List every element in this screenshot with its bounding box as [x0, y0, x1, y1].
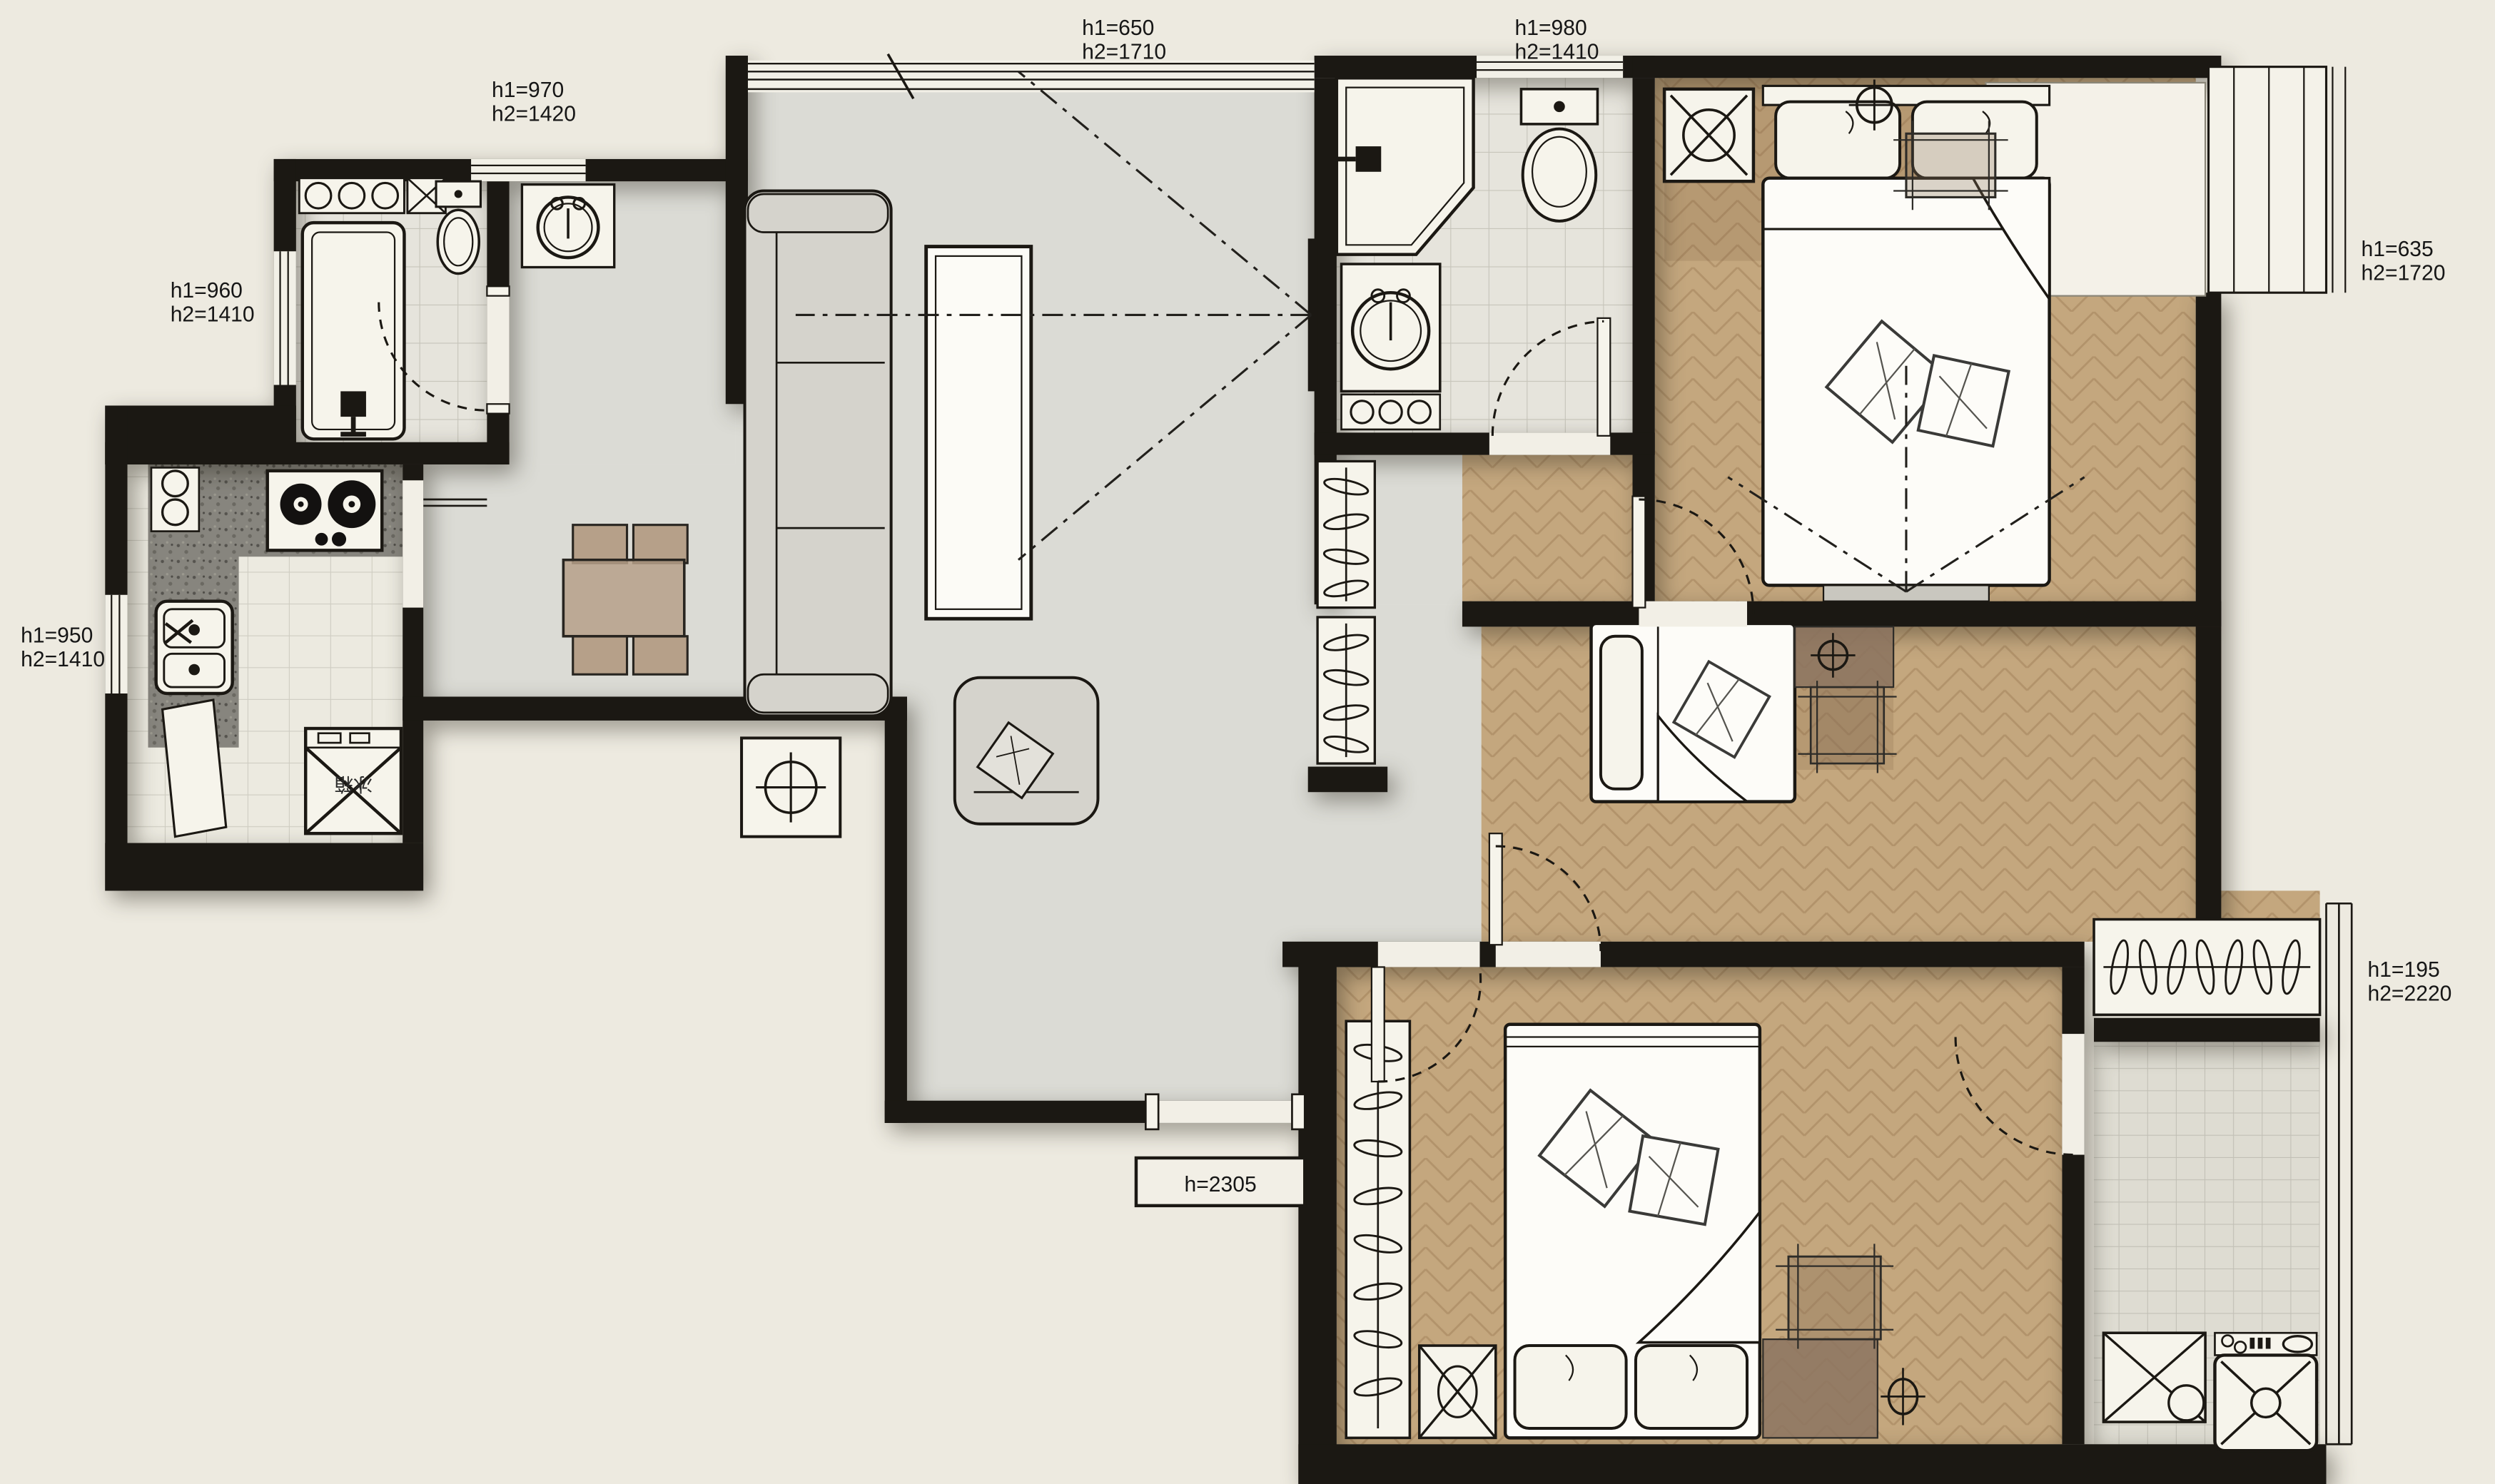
bath1-door-opening[interactable] [487, 293, 509, 404]
master-door-leaf[interactable] [1633, 497, 1646, 608]
kitchen-window [105, 595, 127, 693]
living-window-label-2: h2=1710 [1082, 40, 1166, 63]
bath2-basin [1342, 264, 1440, 391]
ac-box [1664, 89, 1753, 181]
pillow [1601, 636, 1642, 789]
bath1-window-label-2: h2=1410 [171, 303, 255, 326]
balcony-wardrobe [2094, 920, 2320, 1015]
stove [268, 471, 383, 550]
entry-door[interactable]: h=2305 [1136, 1094, 1305, 1206]
balcony-window-label-2: h2=2220 [2367, 982, 2451, 1005]
bedroom3-ac-box [1419, 1346, 1496, 1438]
bath2-window-label-2: h2=1410 [1515, 40, 1599, 63]
fridge-label: 冰箱 [334, 773, 373, 795]
kitchen-sink [156, 601, 233, 693]
dining-chair [573, 525, 627, 564]
master-bay-window [2209, 67, 2346, 293]
deco-pillow [1629, 1136, 1718, 1224]
bedroom2-door-leaf[interactable] [1489, 833, 1502, 945]
side-table [742, 738, 840, 836]
toilet-1 [436, 181, 480, 273]
bath1-window [274, 251, 296, 385]
deco-pillow [1918, 355, 2009, 446]
bed2 [1591, 624, 1795, 802]
balcony-door-opening[interactable] [2062, 1034, 2084, 1154]
bath2-door-opening[interactable] [1489, 432, 1610, 454]
coffee-table [926, 247, 1031, 619]
living-window-label-1: h1=650 [1082, 16, 1154, 40]
dining-chair [573, 636, 627, 675]
entry-window [471, 159, 586, 181]
floor-plan-svg: 冰箱 [0, 0, 2495, 1484]
dining-chair [633, 525, 687, 564]
balcony-window-label-1: h1=195 [2367, 958, 2439, 982]
bathtub [303, 223, 405, 439]
shower-head-icon [1356, 146, 1382, 172]
entry-foyer [522, 185, 614, 268]
hall-wood-floor [1462, 455, 1633, 601]
wall-basin [522, 185, 614, 268]
master-window-label-2: h2=1720 [2362, 261, 2446, 285]
bedroom2-desk [1795, 626, 1897, 773]
bedroom3-door-leaf[interactable] [1372, 967, 1385, 1082]
fridge: 冰箱 [305, 728, 401, 833]
balcony-window [2327, 903, 2352, 1444]
bedroom3-wardrobe [1346, 1021, 1410, 1438]
shower-head-icon [340, 391, 366, 417]
washing-machine [2215, 1333, 2317, 1450]
entry-door-label: h=2305 [1184, 1173, 1256, 1196]
master-door-opening[interactable] [1639, 601, 1747, 627]
bed3 [1505, 1025, 1760, 1438]
bath1-window-label-1: h1=960 [171, 279, 243, 303]
entry-window-label-1: h1=970 [492, 78, 564, 102]
utility-box [2103, 1333, 2205, 1422]
sofa [745, 191, 891, 716]
dining-chair [633, 636, 687, 675]
kitchen-door-opening[interactable] [403, 480, 423, 607]
bath2-door-leaf[interactable] [1597, 318, 1610, 436]
kitchen-window-label-1: h1=950 [21, 624, 93, 648]
pillow [1515, 1346, 1626, 1428]
toilet-2 [1521, 89, 1597, 221]
dining-table [563, 560, 684, 636]
living-window [748, 54, 1315, 98]
pillow [1776, 102, 1900, 178]
bath2-window-label-1: h1=980 [1515, 16, 1587, 40]
armchair [955, 678, 1098, 824]
kitchen-window-label-2: h2=1410 [21, 648, 105, 671]
master-window-label-1: h1=635 [2362, 238, 2434, 261]
bedroom2-door-opening[interactable] [1496, 942, 1601, 967]
bedroom3-door-opening[interactable] [1378, 942, 1480, 967]
entry-window-label-2: h2=1420 [492, 102, 576, 126]
dining-set [563, 525, 687, 675]
